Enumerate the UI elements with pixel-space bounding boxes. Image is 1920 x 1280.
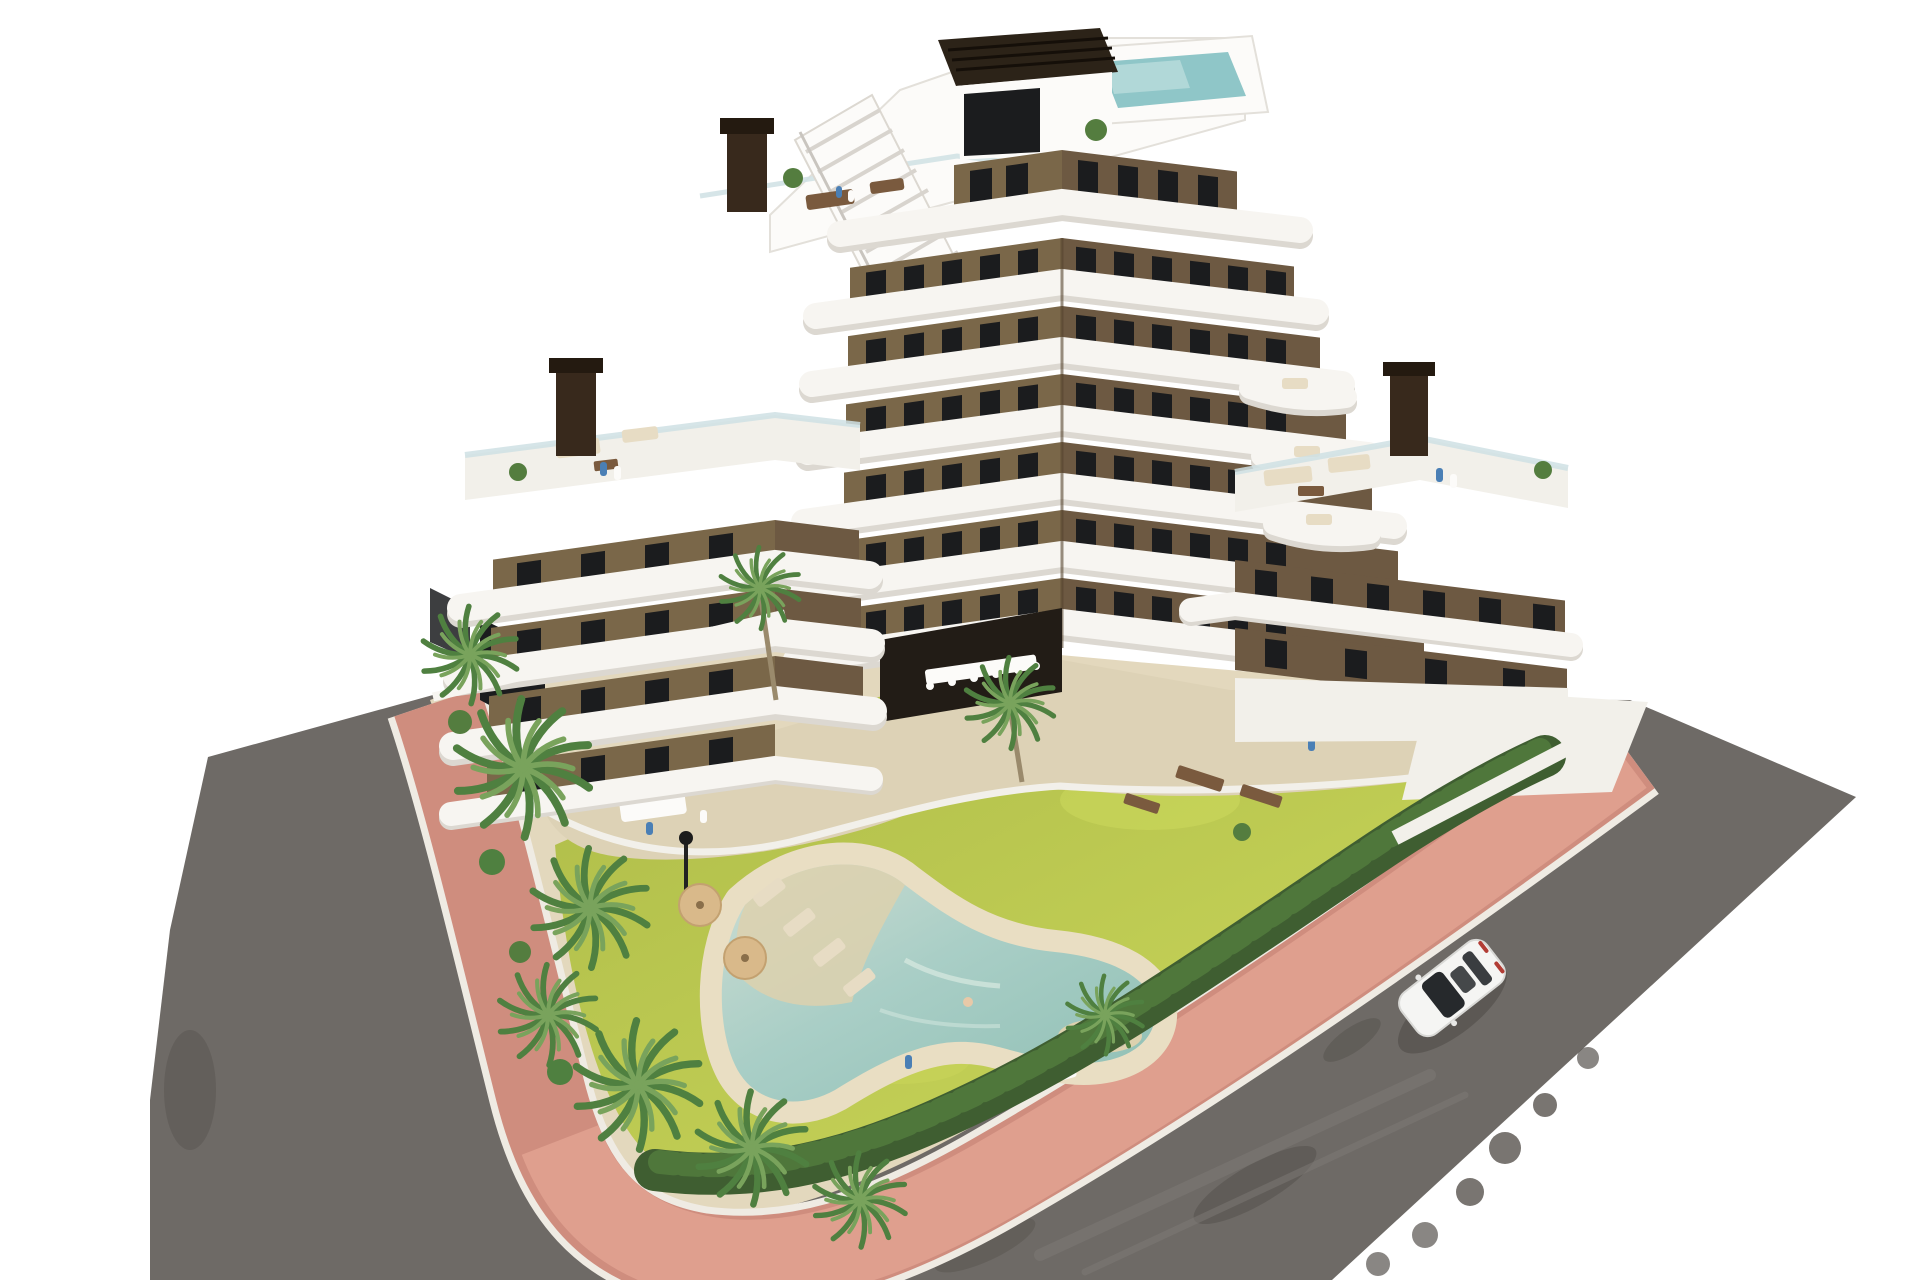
rooftop-plunge-pool bbox=[1085, 36, 1268, 124]
person-pool-deck bbox=[905, 1055, 912, 1069]
render-canvas bbox=[0, 0, 1920, 1280]
swimmer bbox=[963, 997, 973, 1007]
architectural-render bbox=[0, 0, 1920, 1280]
chimney-left-wing bbox=[549, 358, 603, 456]
chimney-right-wing bbox=[1383, 362, 1435, 456]
chimney-roof bbox=[720, 118, 774, 212]
roof-pergola bbox=[938, 28, 1118, 160]
